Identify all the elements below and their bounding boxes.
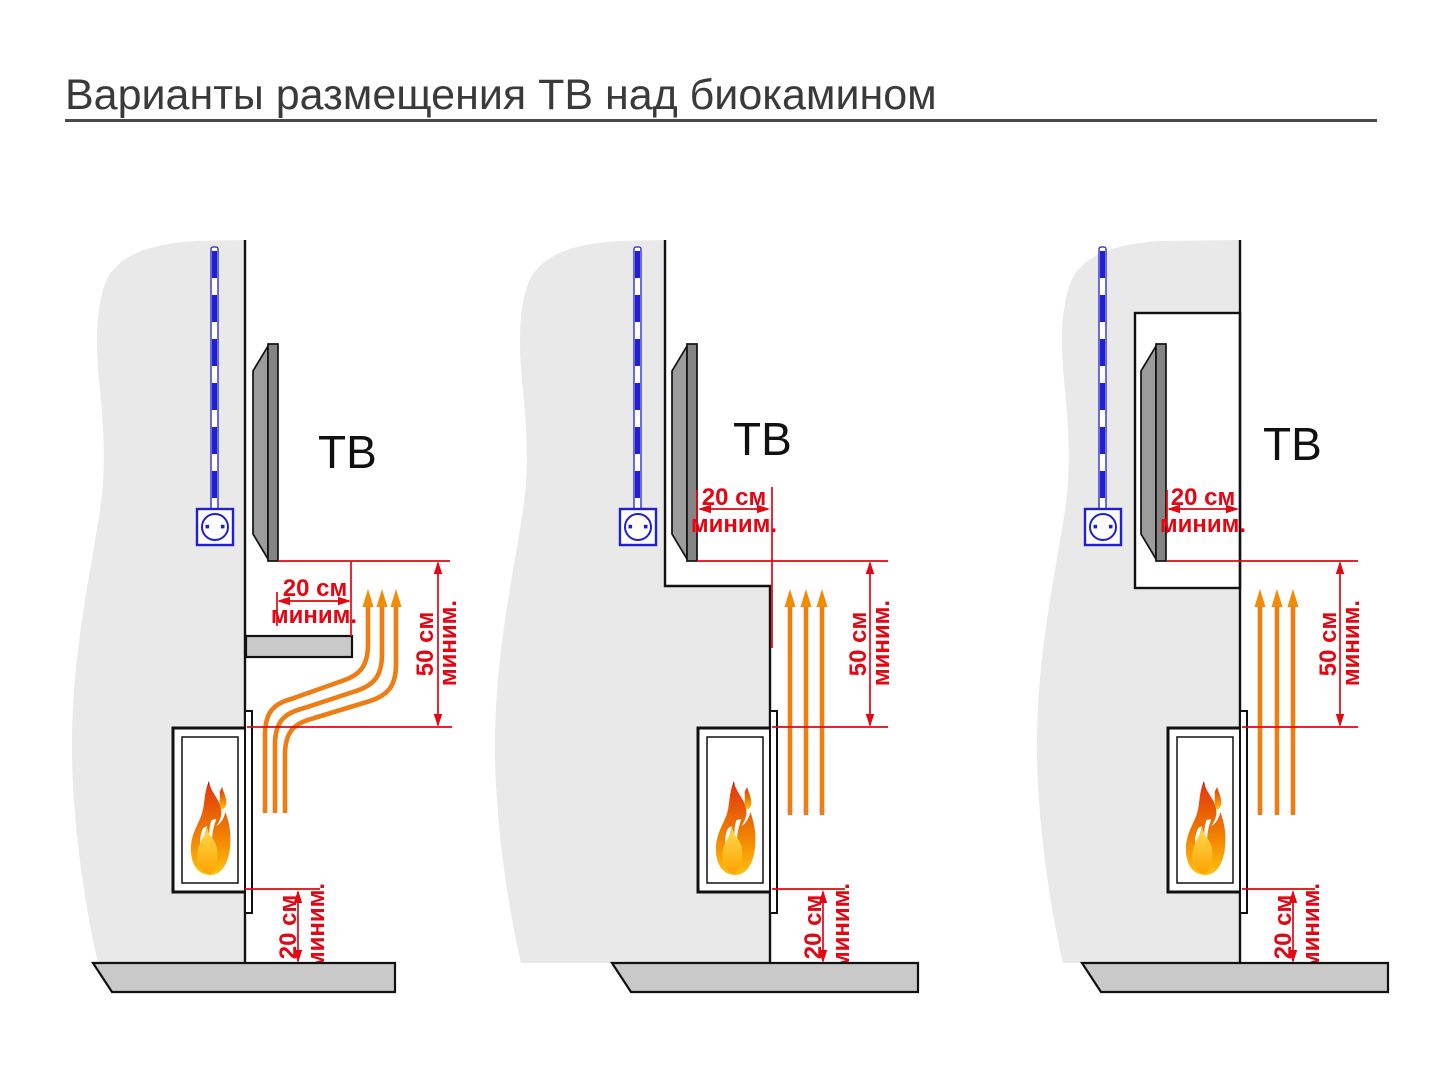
side-clearance-qualifier: миним. <box>1160 511 1246 538</box>
floor-clearance-dimension: 20 см миним. <box>1242 883 1325 969</box>
side-clearance-value: 20 см <box>1171 484 1235 511</box>
floor <box>1082 963 1388 992</box>
diagram-niche-variant: ТВ 20 см миним. 50 см <box>1037 240 1388 992</box>
floor-clearance-qualifier: миним. <box>303 883 330 969</box>
tv-label: ТВ <box>733 413 792 465</box>
fireplace <box>1168 711 1247 913</box>
vertical-clearance-qualifier: миним. <box>435 600 462 686</box>
floor-clearance-value: 20 см <box>1270 895 1297 959</box>
fireplace <box>698 711 777 913</box>
side-clearance-value: 20 см <box>283 575 347 602</box>
floor-clearance-value: 20 см <box>275 895 302 959</box>
tv-label: ТВ <box>1263 418 1322 470</box>
floor-clearance-dimension: 20 см миним. <box>245 883 330 969</box>
floor-clearance-value: 20 см <box>800 895 827 959</box>
fireplace <box>173 711 252 913</box>
diagram-step-variant: ТВ 20 см миним. <box>495 240 918 992</box>
tv-label: ТВ <box>318 426 377 478</box>
tv-side-view <box>253 344 278 561</box>
floor <box>612 963 918 992</box>
side-clearance-value: 20 см <box>702 484 766 511</box>
page: Варианты размещения ТВ над биокамином <box>0 0 1440 1080</box>
floor-clearance-qualifier: миним. <box>828 883 855 969</box>
diagram-canvas: ТВ 20 см миним. <box>0 0 1440 1080</box>
heat-flow-arrows <box>785 589 828 815</box>
vertical-clearance-qualifier: миним. <box>1338 600 1365 686</box>
floor <box>93 963 395 992</box>
side-clearance-qualifier: миним. <box>271 602 357 629</box>
protective-shelf <box>246 636 352 657</box>
side-clearance-dimension: 20 см миним. <box>1160 484 1246 538</box>
side-clearance-qualifier: миним. <box>691 511 777 538</box>
floor-clearance-dimension: 20 см миним. <box>772 883 855 969</box>
heat-flow-arrows <box>1255 589 1299 815</box>
vertical-clearance-qualifier: миним. <box>868 600 895 686</box>
diagram-shelf-variant: ТВ 20 см миним. <box>72 240 462 992</box>
floor-clearance-qualifier: миним. <box>1298 883 1325 969</box>
